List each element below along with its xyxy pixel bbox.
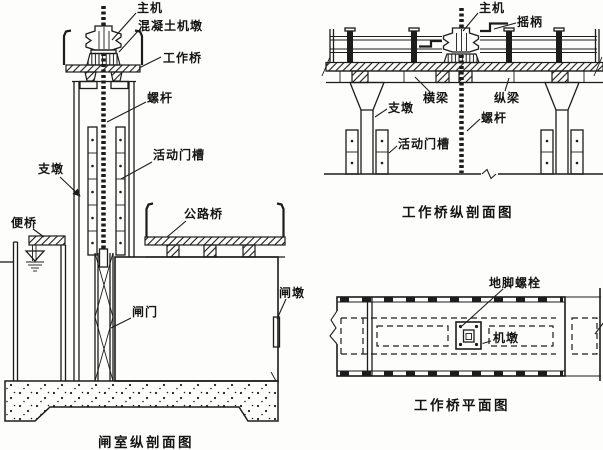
leader-anchor-bolt [462, 289, 503, 326]
working-bridge-section-figure: 主机 摇柄 支墩 横梁 纵梁 螺杆 活动门槽 工作桥纵剖面图 [322, 0, 603, 220]
hoist-machine [444, 28, 479, 52]
hoist-machine [86, 26, 121, 50]
support-pier-right [545, 83, 579, 175]
label-highway-bridge: 公路桥 [184, 206, 223, 221]
upstream-wall [14, 242, 18, 381]
label-crank-handle: 摇柄 [517, 14, 543, 29]
cross-beam [436, 71, 449, 83]
label-movable-gate-slot: 活动门槽 [153, 147, 205, 162]
temporary-bridge [29, 236, 66, 381]
working-bridge-plan-figure: 地脚螺栓 机墩 工作桥平面图 [330, 275, 603, 413]
label-movable-gate-slot: 活动门槽 [398, 136, 450, 151]
label-working-bridge: 工作桥 [163, 50, 202, 65]
label-machine-pier: 机墩 [493, 330, 519, 345]
leader-lines [33, 13, 286, 328]
label-anchor-bolt: 地脚螺栓 [489, 275, 541, 290]
beam-strip [326, 71, 603, 83]
label-cross-beam: 横梁 [423, 90, 449, 105]
railing-right [135, 31, 142, 66]
base-slab [5, 381, 278, 421]
caption-lock-chamber-section: 闸室纵剖面图 [98, 434, 194, 450]
label-main-hoist: 主机 [479, 0, 505, 15]
label-gate-pier: 闸墩 [279, 285, 305, 300]
label-temporary-bridge: 便桥 [11, 215, 37, 230]
label-main-hoist: 主机 [137, 0, 163, 15]
break-mark-right [595, 322, 603, 334]
deck-support-left [85, 72, 96, 81]
label-concrete-machine-pier: 混凝土机墩 [138, 18, 203, 33]
label-longitudinal-beam: 纵梁 [494, 90, 520, 105]
leader-machine-pier [483, 341, 492, 344]
chamber-wall-block [115, 257, 278, 381]
lock-chamber-section-figure: 主机 混凝土机墩 工作桥 螺杆 支墩 活动门槽 便桥 公路桥 闸门 闸墩 闸室纵… [0, 0, 305, 450]
label-screw-rod: 螺杆 [147, 90, 173, 105]
rod-gate-connector [100, 249, 108, 267]
technical-drawing: 主机 混凝土机墩 工作桥 螺杆 支墩 活动门槽 便桥 公路桥 闸门 闸墩 闸室纵… [0, 0, 603, 450]
gate-leaf [95, 253, 113, 381]
anchor-bolt-dots [459, 325, 478, 346]
deck-support-right [111, 72, 122, 81]
support-pier-left [350, 83, 384, 175]
label-support-pier: 支墩 [387, 100, 414, 115]
bridge-deck [326, 63, 603, 72]
cross-beam [352, 71, 368, 83]
water-level-symbol [26, 251, 44, 271]
railing-left [64, 31, 71, 66]
caption-working-bridge-section: 工作桥纵剖面图 [402, 204, 514, 220]
label-screw-rod: 螺杆 [481, 110, 507, 125]
machine-pier-plan [456, 322, 481, 349]
gate-slot-columns [88, 127, 125, 255]
gate-slot-columns [346, 130, 583, 174]
label-support-pier: 支墩 [37, 161, 64, 176]
caption-working-bridge-plan: 工作桥平面图 [414, 397, 510, 413]
plan-outline [337, 297, 565, 376]
label-gate: 闸门 [132, 304, 158, 319]
crank-handle-mark-left [419, 41, 442, 47]
drawing-sheet: 主机 混凝土机墩 工作桥 螺杆 支墩 活动门槽 便桥 公路桥 闸门 闸墩 闸室纵… [0, 0, 603, 450]
cross-beam [552, 71, 568, 83]
